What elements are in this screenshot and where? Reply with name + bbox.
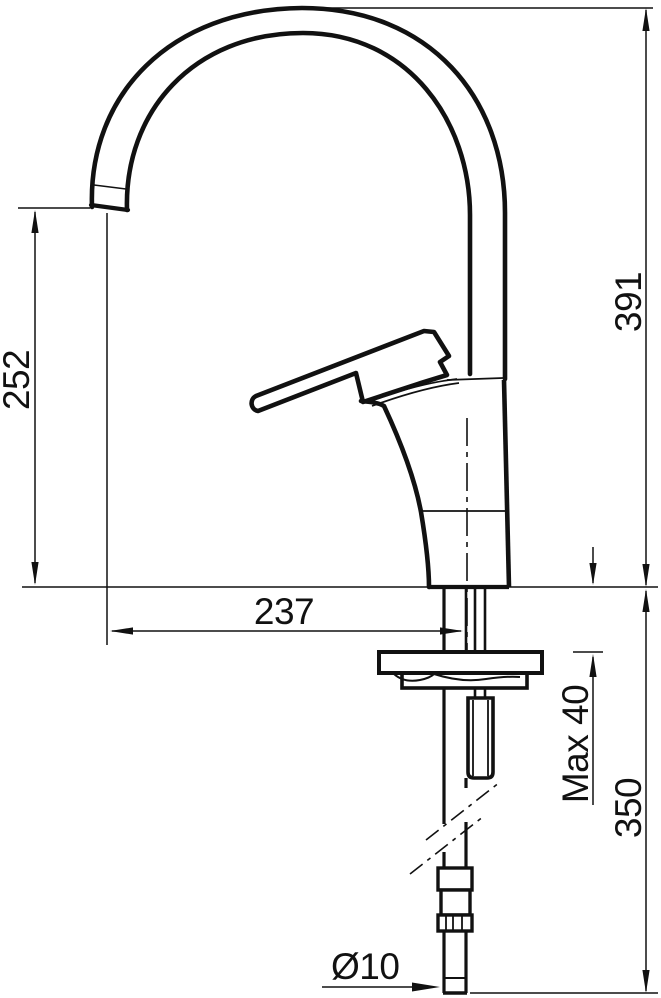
stud-body	[468, 698, 493, 778]
dim-391-arrow-down	[642, 564, 649, 587]
mounting-stud	[468, 688, 493, 778]
dim-dia10-arrow-right	[412, 983, 440, 992]
aerator-seam	[94, 185, 126, 189]
extension-lines	[18, 8, 658, 993]
dim-237-arrow-left	[110, 627, 133, 634]
fitting-union	[438, 868, 472, 890]
escutcheon-plate	[379, 652, 542, 673]
dimension-max-mounting-thickness: Max 40	[555, 547, 597, 805]
dim-252-label: 252	[0, 350, 37, 410]
under-deck-tails	[444, 588, 485, 655]
break-line-upper	[426, 782, 500, 840]
drawing-sheet: 391 252 237 Max 40 350 Ø10	[0, 0, 661, 998]
dim-max40-arrow-up	[589, 654, 596, 677]
dimension-tail-diameter: Ø10	[322, 946, 440, 992]
dim-max40-arrow-down	[589, 563, 596, 585]
faucet-technical-drawing: 391 252 237 Max 40 350 Ø10	[0, 0, 661, 998]
dim-252-arrow-up	[31, 210, 38, 233]
dim-391-arrow-up	[642, 8, 649, 31]
dim-max40-label: Max 40	[555, 685, 596, 803]
spout-inner-edge	[127, 33, 470, 374]
spout-tip-cap	[91, 205, 128, 210]
dim-350-arrow-up	[642, 589, 649, 612]
spout	[91, 8, 505, 379]
fitting-sleeve	[441, 890, 470, 915]
dim-350-arrow-down	[642, 970, 649, 993]
body-fill	[361, 379, 509, 587]
dim-391-label: 391	[608, 272, 649, 332]
dim-252-arrow-down	[31, 562, 38, 585]
fitting-nut	[438, 915, 472, 931]
dim-dia10-label: Ø10	[331, 946, 399, 987]
dim-237-label: 237	[254, 591, 314, 632]
dimension-spout-height: 252	[0, 210, 39, 585]
dimension-overall-height: 391	[608, 8, 650, 587]
dim-350-label: 350	[608, 778, 649, 838]
break-line-lower	[410, 816, 484, 874]
body	[361, 378, 509, 652]
escutcheon	[379, 652, 542, 688]
dim-237-arrow-right	[440, 627, 463, 634]
spout-outer-edge	[92, 8, 505, 379]
dimension-spout-reach: 237	[110, 591, 463, 635]
dimension-tail-length: 350	[608, 589, 650, 993]
